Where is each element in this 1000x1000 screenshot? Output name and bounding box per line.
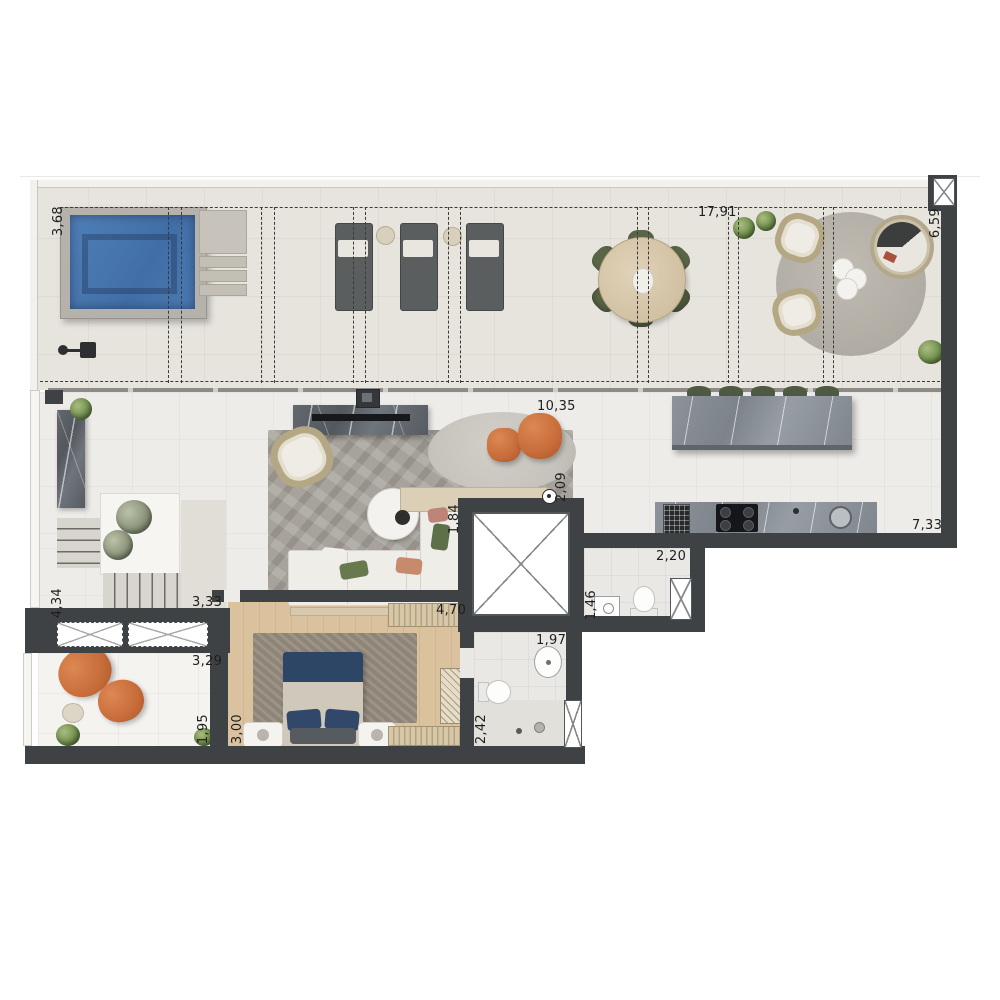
slatted-cabinet-bottom — [388, 726, 462, 746]
bedroom-top-wall — [212, 590, 462, 602]
cooktop-icon — [716, 504, 758, 532]
bathroom-window-x-icon — [564, 700, 582, 748]
projection-line — [261, 207, 262, 383]
shower-drain-icon — [534, 722, 545, 733]
dim-terrace-top-label: 17,91 — [698, 206, 737, 219]
dim-terrace-right-label: 6,59 — [929, 208, 942, 238]
bed — [283, 652, 363, 747]
bedroom-door-opening — [224, 590, 240, 602]
projection-line — [728, 207, 729, 383]
balcony-plant — [56, 724, 80, 746]
projection-line — [365, 207, 366, 383]
projection-line — [738, 207, 739, 383]
bath-sink-icon — [534, 646, 562, 678]
terrace-parapet-top — [30, 180, 942, 188]
pool-deck-slat — [199, 270, 247, 282]
kitchen-sink-icon — [829, 506, 852, 529]
terrace-plant — [733, 217, 755, 239]
dim-lavabo-depth-label: 1,46 — [585, 590, 598, 620]
closet-x-icon — [128, 622, 208, 647]
kitchen-island — [672, 396, 852, 450]
dim-balcony-label: 3,29 — [192, 655, 222, 668]
lavabo-toilet-icon — [630, 586, 656, 618]
pool-deck-slat — [199, 284, 247, 296]
pool-step-ledge — [82, 234, 177, 294]
projection-line — [648, 207, 649, 383]
left-junction-stub — [45, 390, 63, 404]
projection-line — [637, 207, 638, 383]
lavabo-window-x-icon — [670, 578, 692, 620]
nightstand — [243, 722, 283, 748]
sideboard-marble — [57, 410, 85, 508]
orange-pouf — [487, 428, 521, 462]
floor-plan: 3,68 17,91 6,59 10,35 2,09 1,84 7,33 2,2… — [0, 0, 1000, 1000]
ceiling-projector-icon — [356, 389, 380, 408]
sunbed — [335, 223, 373, 311]
pool-deck-step — [199, 210, 247, 254]
dim-gourmet-front-label: 10,35 — [537, 400, 576, 413]
dim-bath-width-label: 1,97 — [536, 634, 566, 647]
dim-gourmet-side-label: 2,09 — [555, 472, 568, 502]
projection-line — [833, 207, 834, 383]
stair-upper-flight — [57, 518, 103, 568]
projection-line — [448, 207, 449, 383]
dim-balcony-depth-label: 1,95 — [197, 714, 210, 744]
projection-line — [168, 207, 169, 383]
shower-valve-icon — [516, 728, 522, 734]
sliding-door-track — [48, 388, 941, 392]
dim-bedroom-depth-label: 3,00 — [231, 714, 244, 744]
tv-screen — [312, 414, 410, 421]
dim-lavabo-label: 2,20 — [656, 550, 686, 563]
dim-bedroom-width-label: 4,70 — [436, 604, 466, 617]
sofa-pillow-white — [321, 547, 346, 563]
dim-pool-label: 3,68 — [52, 206, 65, 236]
bath-toilet-icon — [478, 680, 510, 702]
projection-line — [60, 207, 932, 208]
terrace-parapet-left — [30, 180, 38, 390]
kitchen-faucet-icon — [793, 508, 799, 514]
terrace-plant — [756, 211, 776, 231]
window-x-icon — [933, 178, 955, 206]
elevator-right-wall — [570, 498, 584, 632]
projection-line — [460, 207, 461, 383]
stair-plant — [103, 530, 133, 560]
projection-line — [274, 207, 275, 383]
coffee-table-tray — [395, 510, 410, 525]
sunbed — [400, 223, 438, 311]
oven-appliance-icon — [663, 504, 690, 534]
bottom-wall — [25, 746, 585, 764]
chaise-pillow-pink — [427, 507, 449, 524]
stair-plant — [116, 500, 152, 534]
side-table — [376, 226, 395, 245]
kitchen-bottom-wall — [584, 533, 957, 548]
elevator-shaft-x-icon — [472, 512, 570, 616]
dim-bath-depth-label: 2,42 — [475, 714, 488, 744]
outdoor-shower-icon — [58, 342, 98, 358]
pouf — [836, 278, 858, 300]
projection-line — [353, 207, 354, 383]
daybed — [870, 215, 934, 279]
dim-kitchen-label: 7,33 — [912, 519, 942, 532]
orange-pouf — [518, 413, 562, 459]
dim-stair-hall-label: 4,34 — [51, 588, 64, 618]
projection-line — [181, 207, 182, 383]
right-outer-wall — [941, 175, 957, 548]
dim-elevator-label: 1,84 — [448, 504, 461, 534]
closet-x-icon — [57, 622, 123, 647]
page-frame-line — [20, 176, 980, 177]
wardrobe — [440, 668, 462, 724]
dim-stair-width-label: 3,33 — [192, 596, 222, 609]
stair-lower-flight — [103, 573, 181, 609]
table-centerpiece — [632, 268, 654, 294]
sofa-pillow-salmon — [395, 557, 423, 576]
projection-line — [823, 207, 824, 383]
projection-line — [40, 381, 940, 382]
interior-left-glass-wall — [30, 390, 40, 608]
pool-deck-slat — [199, 256, 247, 268]
balcony-side-table — [62, 703, 84, 723]
sideboard-plant — [70, 398, 92, 420]
bathroom-door-opening — [460, 648, 474, 678]
balcony-left-window — [23, 653, 32, 746]
sunbed — [466, 223, 504, 311]
